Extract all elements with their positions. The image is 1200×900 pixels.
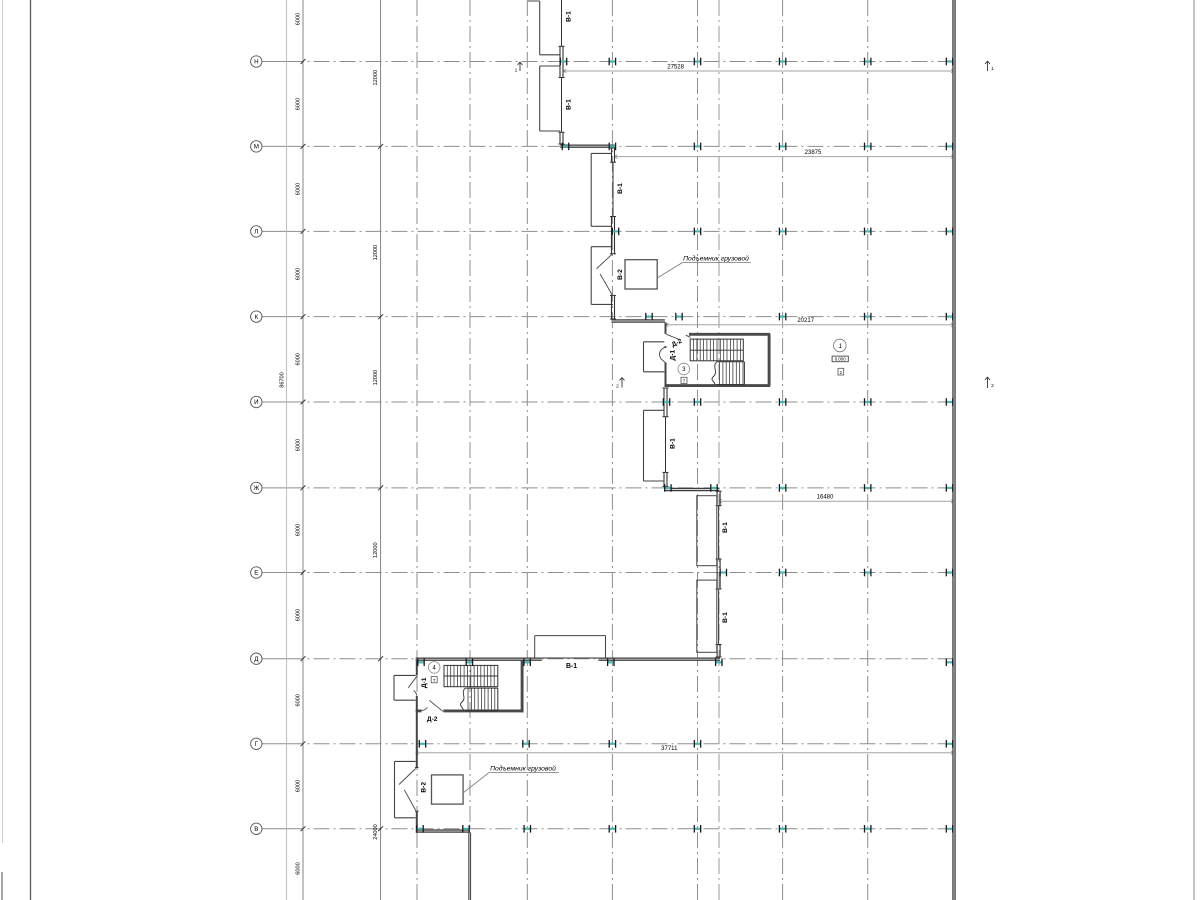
svg-text:12000: 12000 [373,245,379,261]
svg-text:М: М [254,144,259,151]
svg-text:В-1: В-1 [566,663,577,670]
svg-text:6000: 6000 [296,694,302,706]
svg-text:23875: 23875 [805,150,822,156]
svg-text:В: В [254,826,258,833]
svg-text:2: 2 [616,384,619,390]
svg-text:6000: 6000 [296,780,302,792]
svg-text:1: 1 [839,343,842,350]
svg-text:24000: 24000 [373,824,379,840]
svg-text:Н: Н [254,59,258,66]
svg-text:7: 7 [433,678,436,683]
svg-text:В-1: В-1 [722,612,729,623]
svg-text:В-1: В-1 [669,438,676,449]
svg-text:И: И [254,399,258,406]
svg-text:В-1: В-1 [617,183,624,194]
svg-text:6000: 6000 [296,524,302,536]
svg-text:Д-1: Д-1 [670,350,677,361]
svg-text:6000: 6000 [296,13,302,25]
svg-text:Ж: Ж [253,485,259,492]
svg-text:1: 1 [991,66,994,72]
svg-text:12000: 12000 [373,542,379,558]
svg-text:6000: 6000 [296,609,302,621]
svg-text:Подъемник грузовой: Подъемник грузовой [490,765,556,773]
svg-text:12000: 12000 [373,70,379,86]
svg-text:6000: 6000 [296,268,302,280]
svg-text:86700: 86700 [280,372,286,388]
svg-text:Л: Л [254,229,258,236]
svg-text:27528: 27528 [667,64,684,70]
svg-text:1: 1 [515,68,518,74]
svg-text:В-2: В-2 [617,269,624,280]
svg-text:6000: 6000 [296,98,302,110]
svg-text:20217: 20217 [797,318,814,324]
svg-text:6000: 6000 [296,353,302,365]
svg-text:6000: 6000 [296,439,302,451]
svg-text:Д-2: Д-2 [427,716,438,723]
svg-text:0.000: 0.000 [835,357,847,362]
svg-text:В-2: В-2 [420,782,427,793]
svg-text:12000: 12000 [373,370,379,386]
svg-text:В-1: В-1 [566,99,573,110]
svg-text:Е: Е [254,570,258,577]
svg-text:16480: 16480 [817,494,834,500]
svg-text:Д-1: Д-1 [421,677,428,688]
svg-text:6000: 6000 [296,862,302,874]
svg-text:В-1: В-1 [722,522,729,533]
svg-text:К: К [254,314,258,321]
svg-text:6000: 6000 [296,183,302,195]
svg-text:Подъемник грузовой: Подъемник грузовой [683,254,749,262]
svg-text:37711: 37711 [661,746,678,752]
svg-text:2: 2 [991,383,994,389]
svg-text:7: 7 [683,379,686,384]
svg-text:В-1: В-1 [566,11,573,22]
